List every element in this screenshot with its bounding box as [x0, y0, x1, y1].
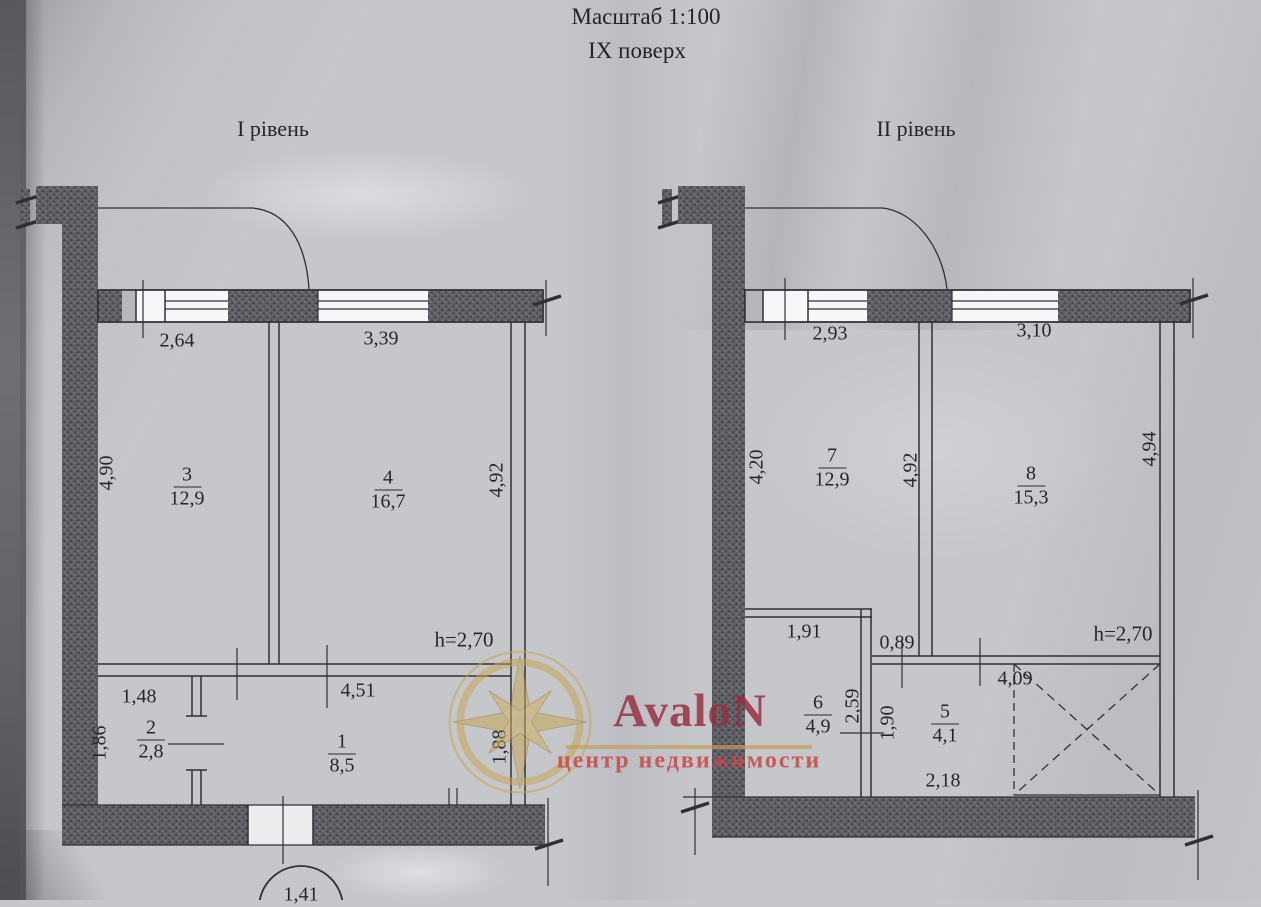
- dim-label: 0,89: [880, 632, 915, 655]
- dim-label: 3,39: [364, 328, 399, 351]
- partition-room5-room8: [872, 656, 1160, 664]
- room-label: 8 15,3: [1014, 464, 1049, 509]
- room-label: 5 4,1: [931, 702, 959, 747]
- bottom-wall: [683, 797, 1195, 837]
- room-area: 12,9: [815, 469, 850, 491]
- dim-label: 3,10: [1017, 320, 1052, 343]
- room-number: 3: [173, 465, 201, 488]
- compass-rose-icon: [444, 646, 596, 798]
- room6-top-wall: [745, 609, 872, 617]
- dim-label: 4,94: [1139, 432, 1162, 467]
- entry-mark-label: 1,41: [284, 884, 319, 907]
- dim-label: 2,18: [926, 770, 961, 793]
- room-label: 1 8,5: [328, 732, 356, 777]
- dim-label: 1,48: [122, 686, 157, 709]
- room-number: 2: [137, 718, 165, 741]
- scale-title: Масштаб 1:100: [572, 4, 721, 30]
- level-1-label: І рівень: [237, 116, 309, 142]
- dim-label: 2,93: [813, 323, 848, 346]
- dim-label: 1,90: [877, 706, 900, 741]
- room-label: 2 2,8: [137, 718, 165, 763]
- room-number: 6: [804, 693, 832, 716]
- top-wall-with-windows: [98, 290, 543, 322]
- room-area: 16,7: [371, 491, 406, 513]
- dim-label: 1,91: [787, 621, 822, 644]
- ceiling-height-label: h=2,70: [1093, 622, 1152, 647]
- floor-title: IX поверх: [588, 38, 686, 64]
- room-area: 12,9: [170, 488, 205, 510]
- balcony-arc: [745, 208, 947, 289]
- dim-label: 4,92: [900, 453, 923, 488]
- dim-label: 4,90: [96, 456, 119, 491]
- room-label: 3 12,9: [170, 465, 205, 510]
- dim-label: 2,64: [160, 330, 195, 353]
- dim-label: 4,09: [998, 668, 1033, 691]
- partition-room3-room4: [269, 322, 279, 664]
- watermark-brand: AvaloN: [613, 684, 767, 738]
- dim-label: 4,51: [341, 680, 376, 703]
- room-area: 2,8: [139, 741, 164, 763]
- top-wall-with-windows: [745, 290, 1190, 322]
- dim-label: 4,20: [746, 450, 769, 485]
- room-number: 5: [931, 702, 959, 725]
- room-label: 6 4,9: [804, 693, 832, 738]
- room-area: 4,9: [806, 716, 831, 738]
- void-cross-box: [1014, 664, 1160, 795]
- balcony-arc: [98, 208, 309, 289]
- room-label: 4 16,7: [371, 468, 406, 513]
- level-2-label: ІІ рівень: [876, 116, 955, 142]
- room-area: 15,3: [1014, 487, 1049, 509]
- dim-label: 2,59: [842, 689, 865, 724]
- dim-label: 1,86: [89, 726, 112, 761]
- dim-label: 4,92: [486, 463, 509, 498]
- scanned-floor-plan-photo: { "header": { "scale": "Масштаб 1:100", …: [0, 0, 1261, 900]
- left-exterior-wall: [712, 186, 745, 837]
- room-label: 7 12,9: [815, 446, 850, 491]
- room-number: 1: [328, 732, 356, 755]
- room-area: 8,5: [330, 755, 355, 777]
- watermark-tagline: центр недвижимости: [557, 748, 821, 775]
- partition-room7-room8: [919, 322, 932, 656]
- bottom-wall: [62, 805, 545, 845]
- room-number: 4: [374, 468, 402, 491]
- room-number: 7: [818, 446, 846, 469]
- dimension-ticks: [143, 280, 457, 864]
- room-number: 8: [1017, 464, 1045, 487]
- room-area: 4,1: [933, 725, 958, 747]
- right-thin-wall: [1160, 322, 1174, 797]
